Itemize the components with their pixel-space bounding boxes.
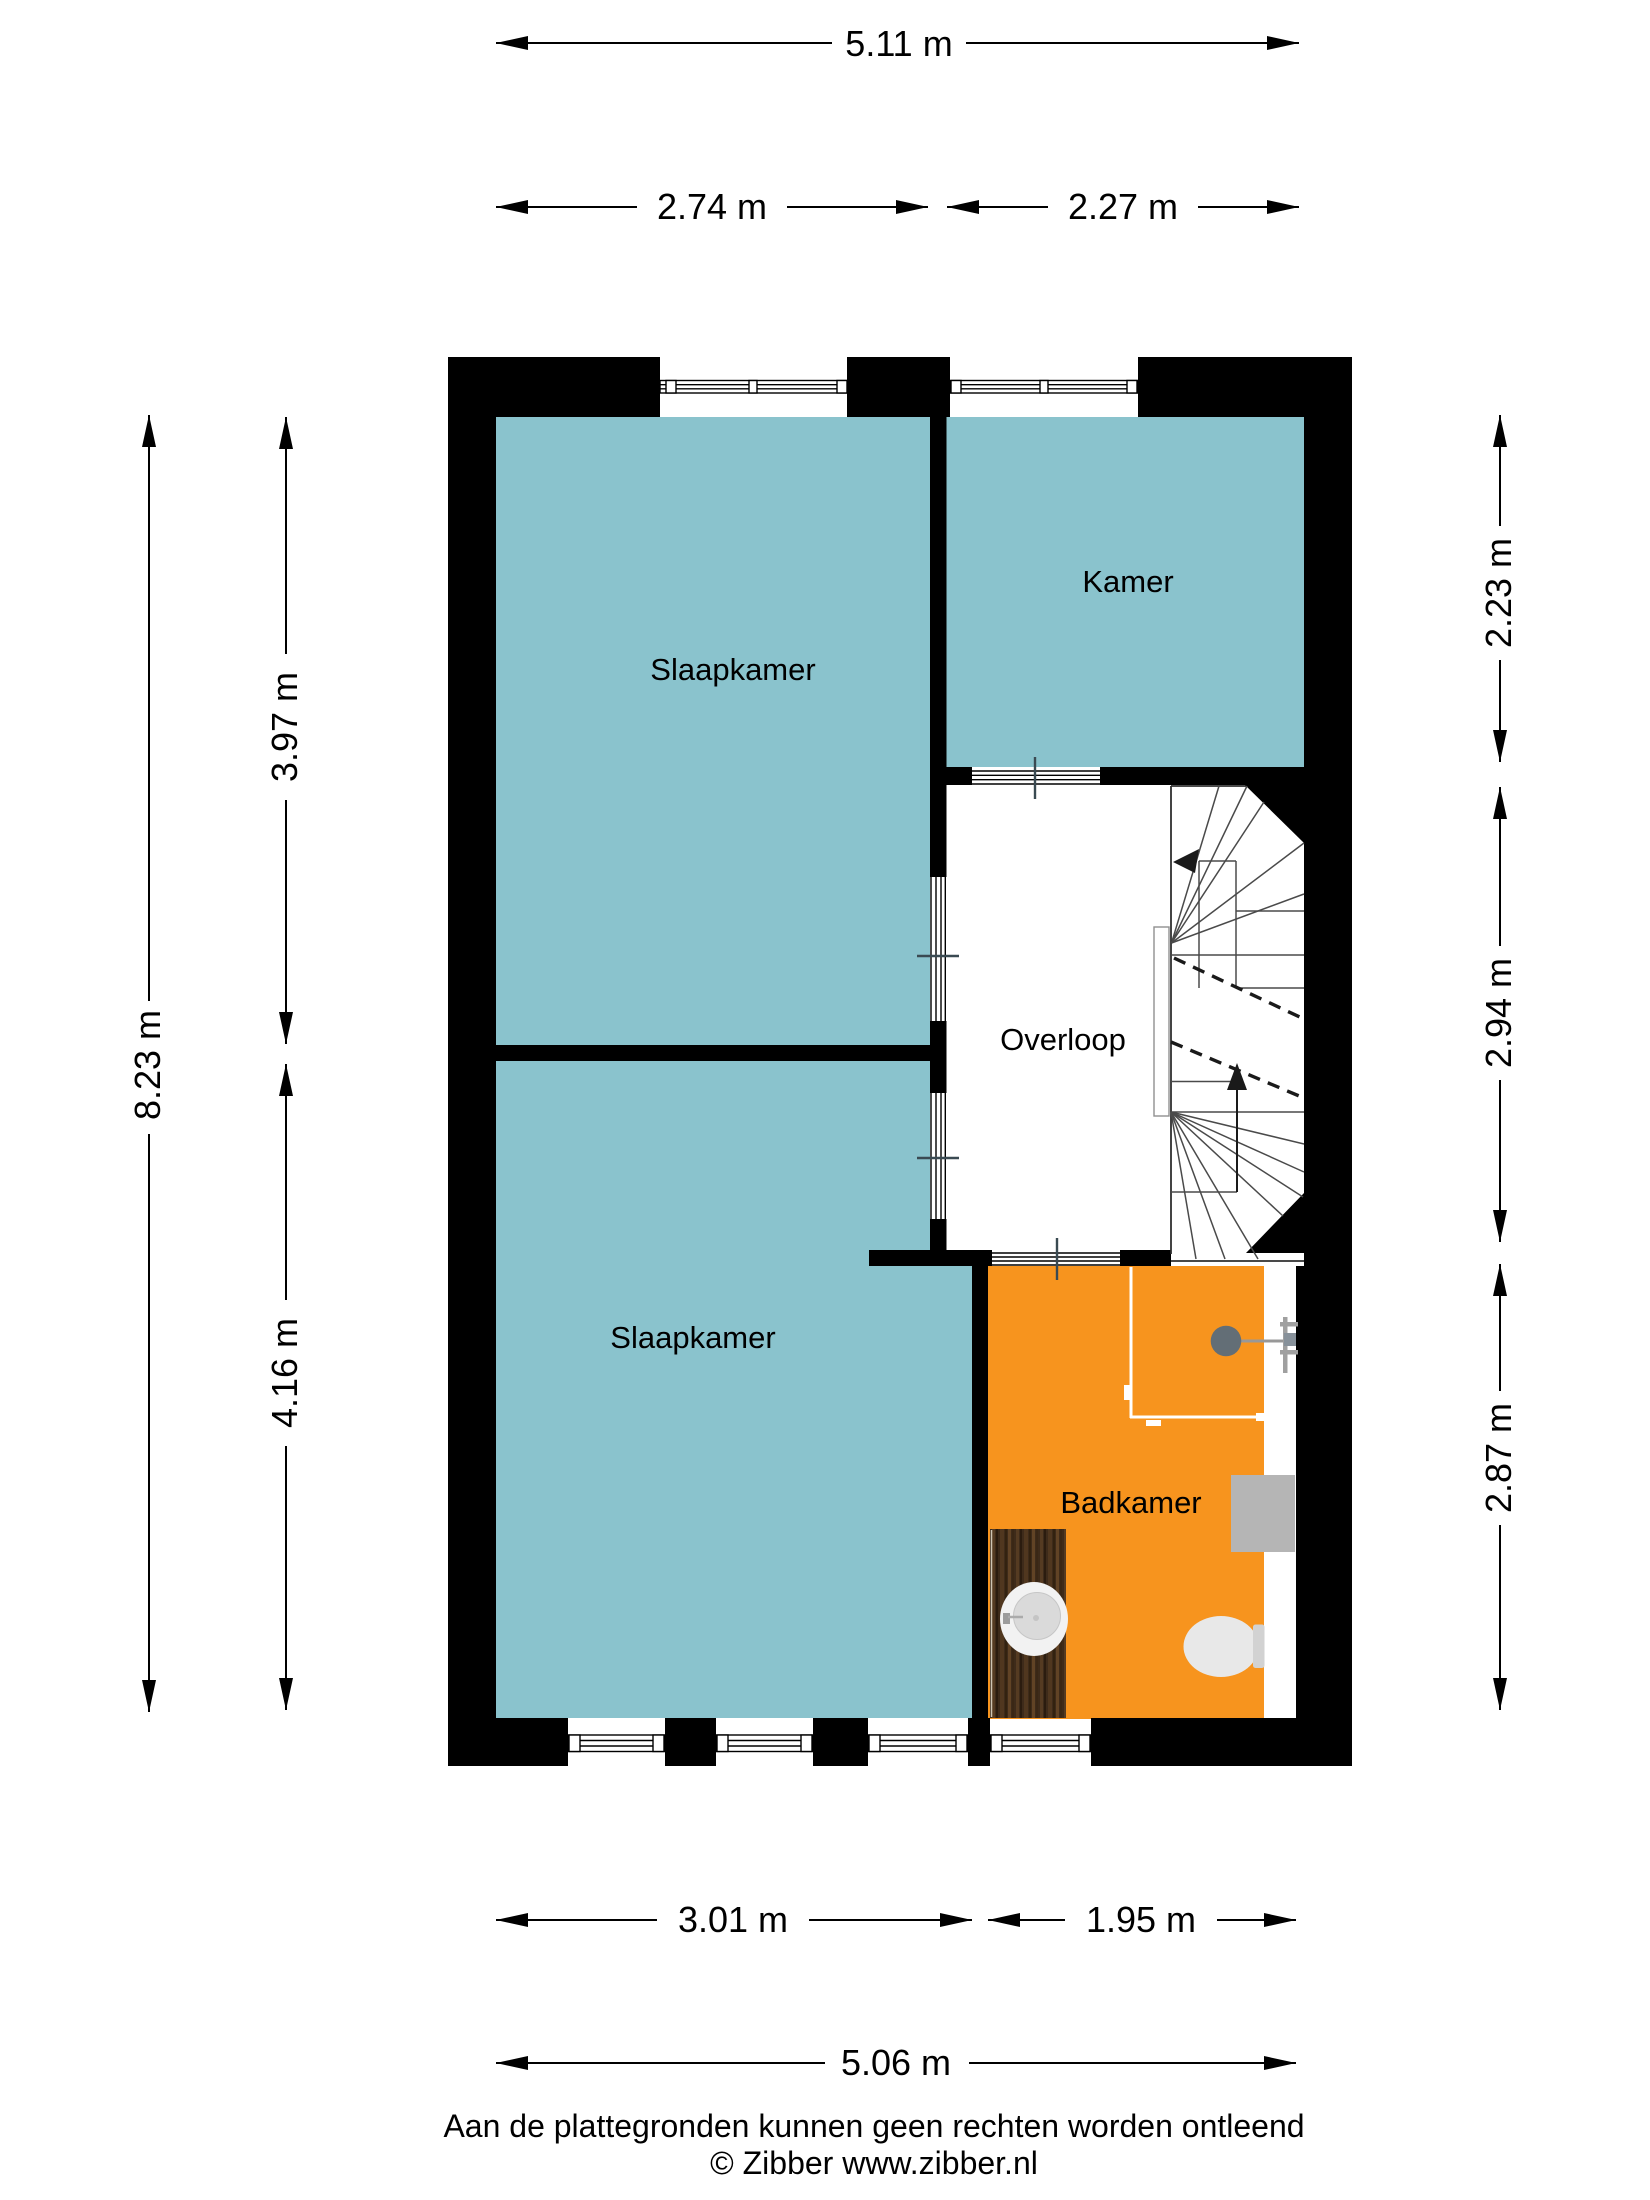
svg-text:Badkamer: Badkamer bbox=[1060, 1485, 1201, 1520]
svg-text:4.16 m: 4.16 m bbox=[264, 1318, 305, 1428]
svg-text:2.74 m: 2.74 m bbox=[657, 186, 767, 227]
svg-text:3.97 m: 3.97 m bbox=[264, 672, 305, 782]
svg-text:Overloop: Overloop bbox=[1000, 1022, 1126, 1057]
svg-text:2.27 m: 2.27 m bbox=[1068, 186, 1178, 227]
svg-text:5.06 m: 5.06 m bbox=[841, 2042, 951, 2083]
svg-text:2.94 m: 2.94 m bbox=[1478, 958, 1519, 1068]
svg-text:1.95 m: 1.95 m bbox=[1086, 1899, 1196, 1940]
svg-text:8.23 m: 8.23 m bbox=[127, 1010, 168, 1120]
svg-text:Aan de plattegronden kunnen ge: Aan de plattegronden kunnen geen rechten… bbox=[443, 2108, 1304, 2144]
svg-text:2.23 m: 2.23 m bbox=[1478, 538, 1519, 648]
svg-text:Slaapkamer: Slaapkamer bbox=[650, 652, 815, 687]
svg-text:3.01 m: 3.01 m bbox=[678, 1899, 788, 1940]
svg-text:© Zibber www.zibber.nl: © Zibber www.zibber.nl bbox=[710, 2145, 1038, 2181]
svg-text:2.87 m: 2.87 m bbox=[1478, 1403, 1519, 1513]
svg-text:Slaapkamer: Slaapkamer bbox=[610, 1320, 775, 1355]
svg-text:5.11 m: 5.11 m bbox=[845, 23, 952, 64]
svg-text:Kamer: Kamer bbox=[1082, 564, 1173, 599]
